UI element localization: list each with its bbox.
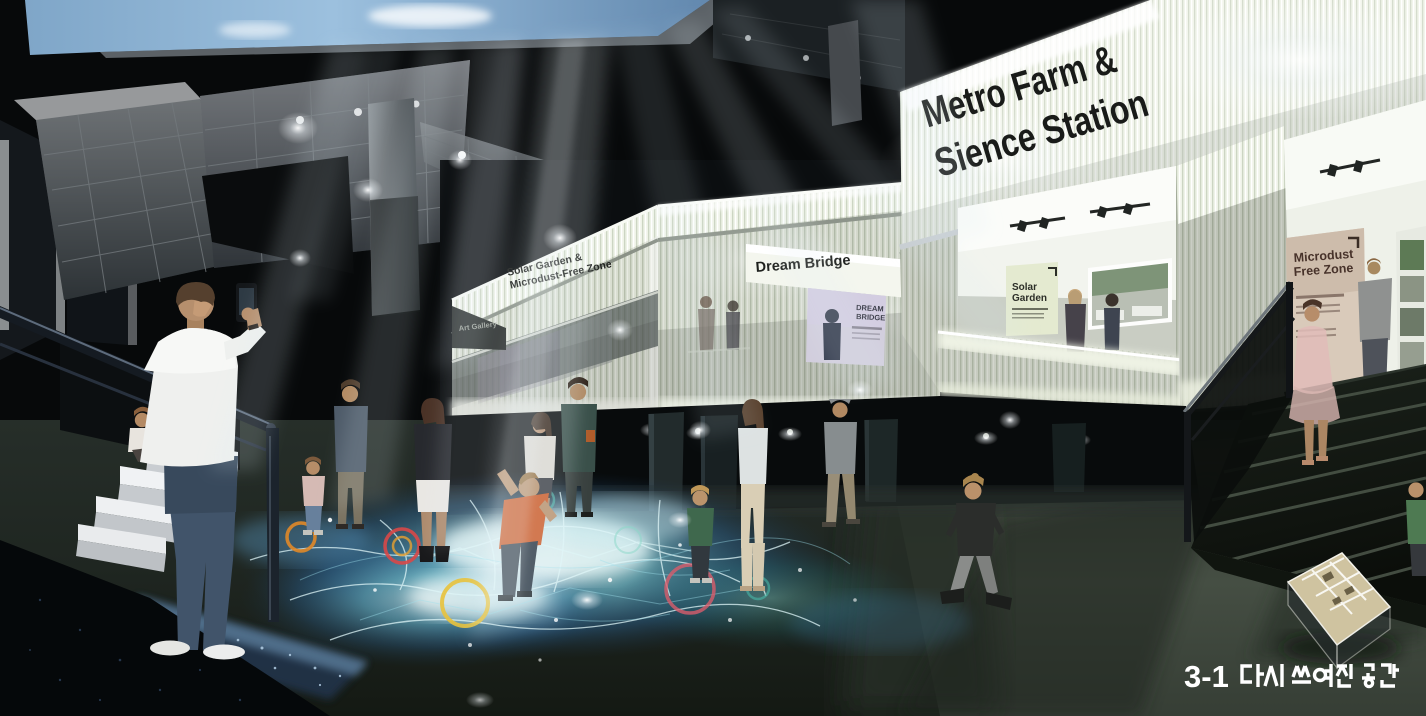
svg-text:Garden: Garden bbox=[1012, 293, 1047, 304]
svg-text:3-1: 3-1 bbox=[1184, 659, 1229, 694]
svg-text:Solar: Solar bbox=[1012, 282, 1037, 293]
